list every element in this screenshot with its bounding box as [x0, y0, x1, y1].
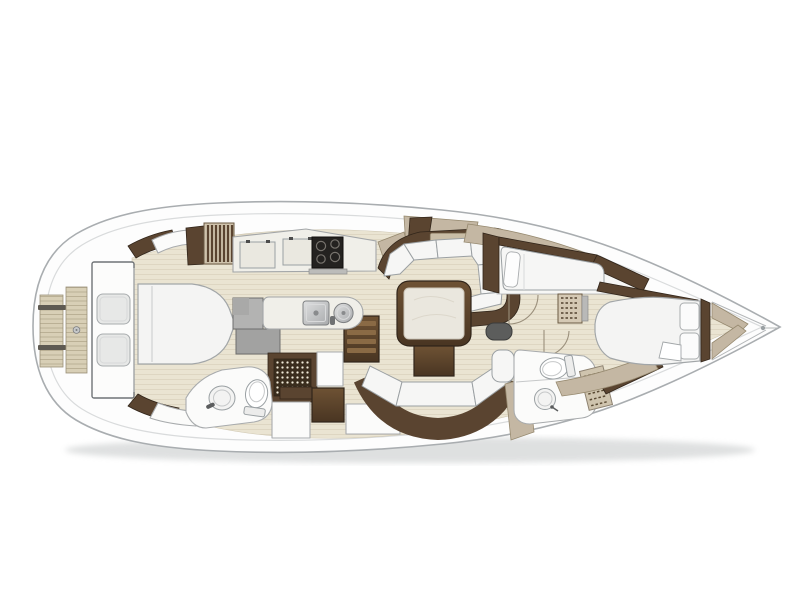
hatch-clasp — [308, 237, 312, 240]
sink-drain — [342, 311, 346, 315]
pillow — [680, 333, 699, 359]
settee-cushion — [396, 382, 476, 406]
dresser-side — [582, 296, 588, 321]
counter-hatch — [283, 239, 316, 265]
latch-pin — [76, 329, 78, 331]
aft-double-berth — [138, 284, 235, 364]
walnut-locker — [312, 388, 344, 422]
cabinet — [317, 352, 343, 386]
table-pedestal — [414, 346, 454, 376]
nav-seat — [236, 329, 280, 354]
ottoman-pouf — [486, 323, 512, 340]
hatch-slats — [208, 225, 232, 262]
headboard-trim — [701, 299, 710, 362]
cabinet — [272, 402, 310, 438]
yacht-floorplan: Sailing yacht interior layout - top-down… — [0, 0, 800, 600]
cockpit-seat-cushion — [97, 294, 130, 324]
swim-platform — [38, 287, 87, 373]
hatch-clasp — [266, 240, 270, 243]
sink-drain — [313, 310, 318, 315]
step-tread — [347, 330, 376, 335]
berth-bench — [659, 342, 681, 361]
platform-bar — [38, 345, 66, 350]
cockpit-seat-cushion — [97, 334, 130, 366]
pillow — [680, 303, 699, 330]
walnut-fiddle — [280, 387, 312, 399]
table-top — [404, 288, 464, 339]
step-tread — [347, 348, 376, 353]
counter-hatch — [240, 242, 275, 268]
anchor-fitting — [761, 326, 765, 330]
floorplan-canvas: Sailing yacht interior layout - top-down… — [0, 0, 800, 600]
hatch-clasp — [246, 240, 250, 243]
cabin-wall — [483, 233, 499, 293]
walnut-wedge — [186, 226, 206, 265]
galley-faucet — [330, 316, 335, 325]
pillow — [503, 251, 521, 287]
hatch-clasp — [289, 237, 293, 240]
counter-lip — [309, 269, 347, 274]
seat-cushion — [492, 350, 514, 382]
platform-bar — [38, 305, 66, 310]
step-tread — [347, 339, 376, 344]
cockpit-well — [92, 262, 134, 398]
aft-cabin — [138, 284, 235, 364]
cockpit — [92, 262, 134, 398]
desk-step — [233, 298, 249, 315]
